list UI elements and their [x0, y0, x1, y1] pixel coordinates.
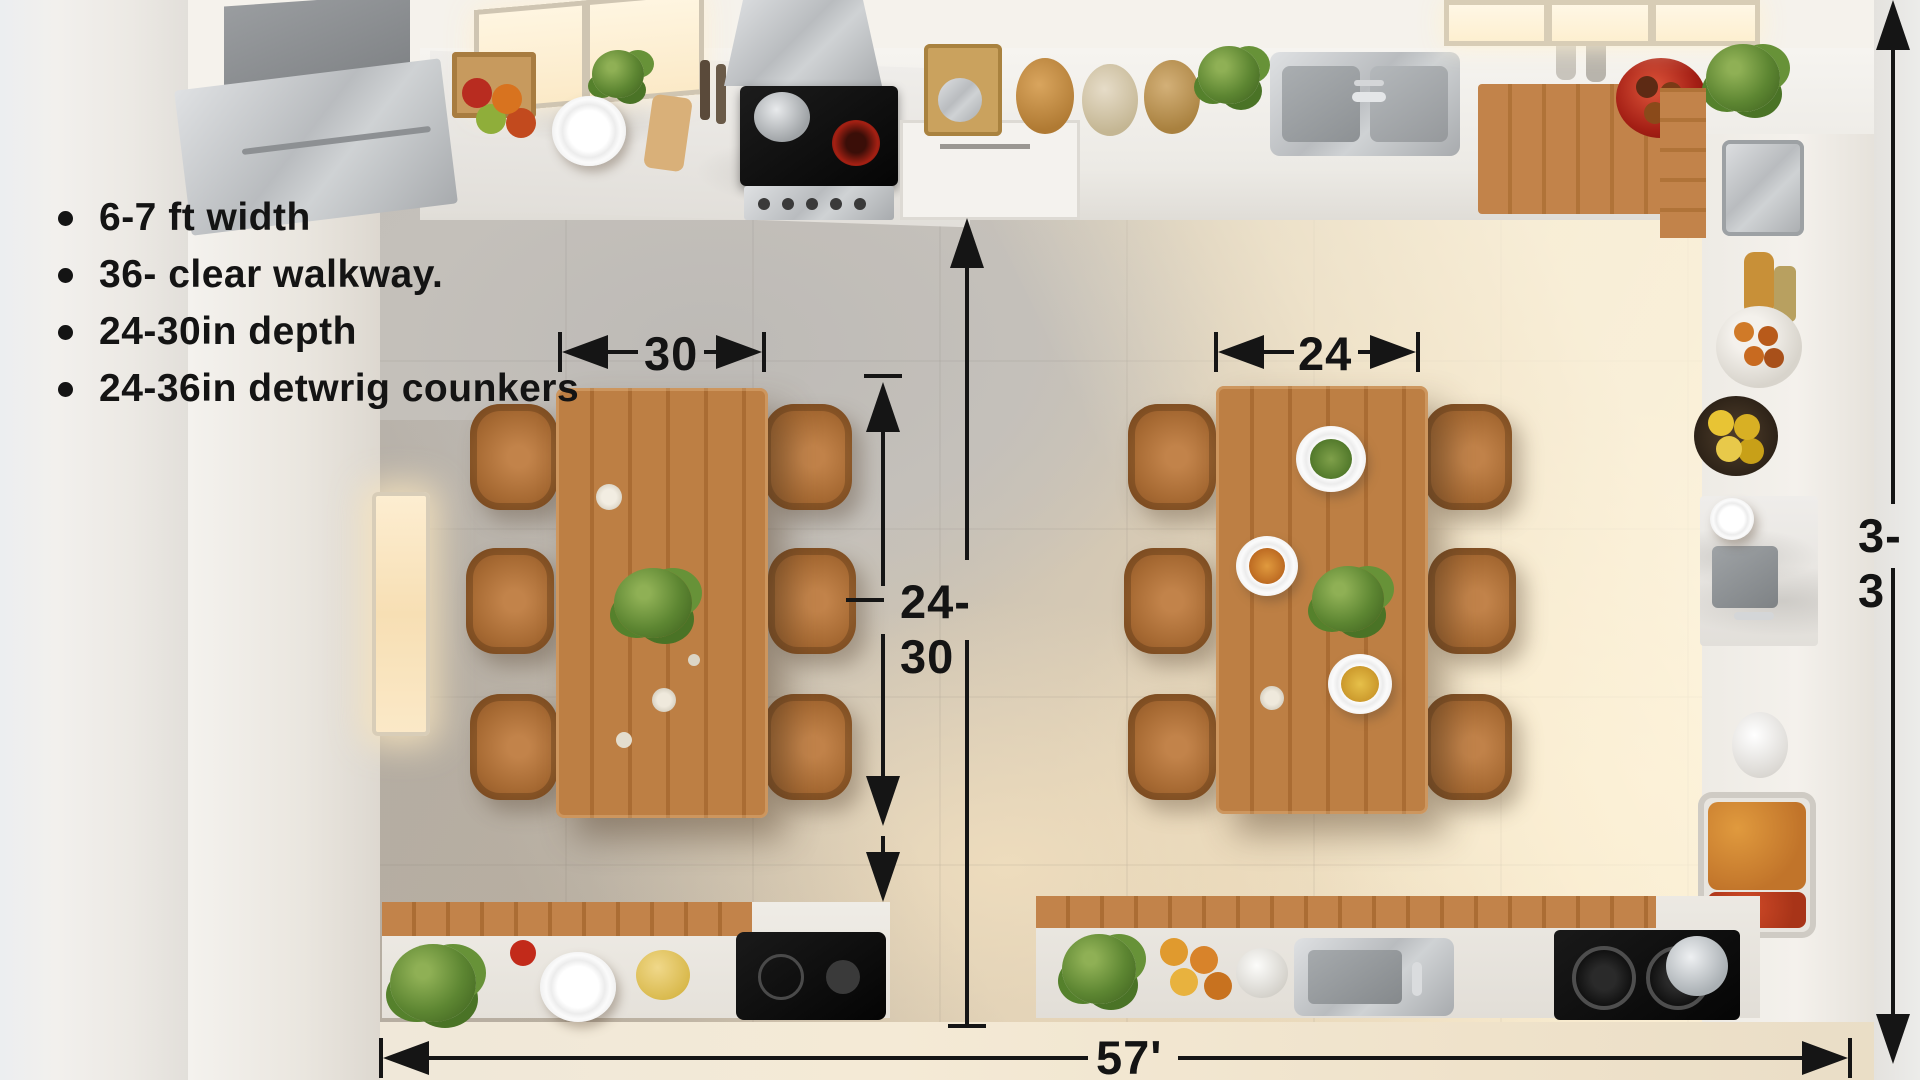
range-hood: [724, 0, 882, 86]
dim-tick: [1848, 1038, 1852, 1078]
bullet-label: 36- clear walkway.: [99, 253, 443, 297]
induction-burners: [758, 954, 804, 1000]
dim-line: [424, 1056, 1088, 1060]
right-table-chair-r3: [1424, 694, 1512, 800]
bullet-item-4: 24-36in detwrig counkers: [58, 367, 579, 411]
pot-steel: [754, 92, 810, 142]
dim-line: [1891, 46, 1895, 504]
left-dining-table: [556, 388, 768, 818]
dim-line: [881, 634, 885, 784]
bowl-fruits: [1636, 76, 1658, 98]
white-pot: [1236, 948, 1288, 998]
bullet-icon: [58, 325, 73, 340]
bottom-right-plant: [1062, 934, 1136, 1004]
right-table-glass: [1260, 686, 1284, 710]
kitchen-dimension-diagram: 6-7 ft width 36- clear walkway. 24-30in …: [0, 0, 1920, 1080]
induction-cooktop: [736, 932, 886, 1020]
dim-tick: [762, 332, 766, 372]
salad-food: [1310, 439, 1352, 479]
dim-tick: [864, 374, 902, 378]
arrow-up-icon: [866, 382, 900, 432]
top-right-plant: [1706, 44, 1780, 112]
left-wall: [0, 0, 188, 1080]
right-table-chair-l1: [1128, 404, 1216, 510]
dim-line: [1891, 568, 1895, 1018]
bench-wood-strip-right: [1036, 896, 1656, 928]
dim-line: [965, 264, 969, 560]
cooktop: [740, 86, 898, 186]
dried-fruit: [1734, 322, 1754, 342]
right-dining-table: [1216, 386, 1428, 814]
dim-tick: [948, 1024, 986, 1028]
arrow-down-icon: [1876, 1014, 1910, 1064]
bullet-item-2: 36- clear walkway.: [58, 253, 579, 297]
bottom-left-plate: [540, 952, 616, 1022]
bullet-item-3: 24-30in depth: [58, 310, 579, 354]
top-plate-stack: [552, 96, 626, 166]
drawer-handle: [940, 144, 1030, 149]
right-table-chair-r1: [1424, 404, 1512, 510]
right-table-chair-l3: [1128, 694, 1216, 800]
dim-line: [881, 428, 885, 586]
left-window: [372, 492, 430, 736]
pantry-jar-1: [1016, 58, 1074, 134]
arrow-right-icon: [1370, 335, 1416, 369]
window-mullions: [1544, 0, 1552, 46]
bottom-sink-faucet: [1412, 962, 1422, 996]
bowl-lemons: [1694, 396, 1778, 476]
oven-knobs: [758, 198, 770, 210]
bullet-icon: [58, 211, 73, 226]
dim-line: [600, 350, 638, 354]
top-right-window: [1444, 0, 1760, 46]
right-faucet: [1734, 612, 1774, 620]
snack-nuts: [1708, 802, 1806, 890]
arrow-right-icon: [716, 335, 762, 369]
right-table-chair-r2: [1428, 548, 1516, 654]
bullet-label: 6-7 ft width: [99, 196, 311, 240]
left-table-chair-r2: [768, 548, 856, 654]
left-table-glass-2: [652, 688, 676, 712]
spec-bullet-list: 6-7 ft width 36- clear walkway. 24-30in …: [58, 196, 579, 424]
citrus-cluster: [1160, 938, 1188, 966]
pasta-bowl: [636, 950, 690, 1000]
gas-stove: [1554, 930, 1740, 1020]
skylight-mullion: [582, 0, 590, 105]
main-sink: [1270, 52, 1460, 156]
bench-wood-strip: [382, 902, 752, 936]
dish-3-food: [1341, 666, 1379, 702]
paper-roll: [938, 78, 982, 122]
arrow-left-icon: [383, 1041, 429, 1075]
arrow-right-icon: [1802, 1041, 1848, 1075]
stove-pot: [1666, 936, 1728, 996]
top-plant-small: [592, 50, 644, 98]
bullet-icon: [58, 268, 73, 283]
gas-burner-1: [1572, 946, 1636, 1010]
bullet-icon: [58, 382, 73, 397]
bottom-left-plant: [390, 944, 476, 1022]
pantry-jar-3: [1144, 60, 1200, 134]
fridge-handle: [242, 126, 431, 155]
bowl-dried-fruit: [1716, 306, 1802, 388]
paper-towel-holder: [924, 44, 1002, 136]
left-table-chair-r3: [764, 694, 852, 800]
dim-line: [965, 640, 969, 1026]
tomato: [510, 940, 536, 966]
bullet-label: 24-30in depth: [99, 310, 357, 354]
bottom-floor-strip: [188, 1022, 1920, 1080]
left-table-centerpiece: [614, 568, 692, 638]
bullet-label: 24-36in detwrig counkers: [99, 367, 579, 411]
dim-line: [1178, 1056, 1806, 1060]
dim-tick: [1416, 332, 1420, 372]
bottom-sink: [1294, 938, 1454, 1016]
right-sink-basin: [1712, 546, 1778, 608]
left-table-chair-l3: [470, 694, 558, 800]
right-table-chair-l2: [1124, 548, 1212, 654]
right-counter-wood-edge: [1660, 88, 1706, 238]
dim-value: 30: [644, 326, 698, 381]
right-table-dish-2: [1236, 536, 1298, 596]
top-plant-herb: [1198, 46, 1260, 104]
dim-value: 24: [1298, 326, 1352, 381]
burner-red: [832, 120, 880, 166]
dim-tick: [846, 598, 884, 602]
arrow-up-icon: [950, 218, 984, 268]
right-sink-block: [1700, 496, 1818, 646]
lemons: [1708, 410, 1734, 436]
dim-value: 24-30: [900, 574, 971, 684]
left-table-chair-r1: [764, 404, 852, 510]
dim-value: 3-3: [1858, 508, 1902, 618]
right-table-dish-3: [1328, 654, 1392, 714]
left-table-chair-l2: [466, 548, 554, 654]
arrow-down-icon: [866, 776, 900, 826]
pantry-jar-2: [1082, 64, 1138, 136]
left-table-glass-1: [596, 484, 622, 510]
sink-basin-right: [1370, 66, 1448, 142]
oven-front: [744, 186, 894, 220]
knife-set: [700, 60, 710, 120]
right-dish: [1710, 498, 1754, 540]
sink-basin-left: [1282, 66, 1360, 142]
arrow-down-icon: [866, 852, 900, 902]
ice-dispenser: [1722, 140, 1804, 236]
dim-value: 57': [1096, 1030, 1162, 1080]
right-table-centerpiece: [1312, 566, 1384, 632]
bullet-item-1: 6-7 ft width: [58, 196, 579, 240]
dim-line: [1256, 350, 1294, 354]
fruit-apples: [462, 78, 492, 108]
arrow-up-icon: [1876, 0, 1910, 50]
right-table-salad-plate: [1296, 426, 1366, 492]
bottom-sink-basin: [1308, 950, 1402, 1004]
dish-2-food: [1249, 548, 1285, 584]
white-canister: [1732, 712, 1788, 778]
sink-faucet: [1352, 92, 1386, 102]
